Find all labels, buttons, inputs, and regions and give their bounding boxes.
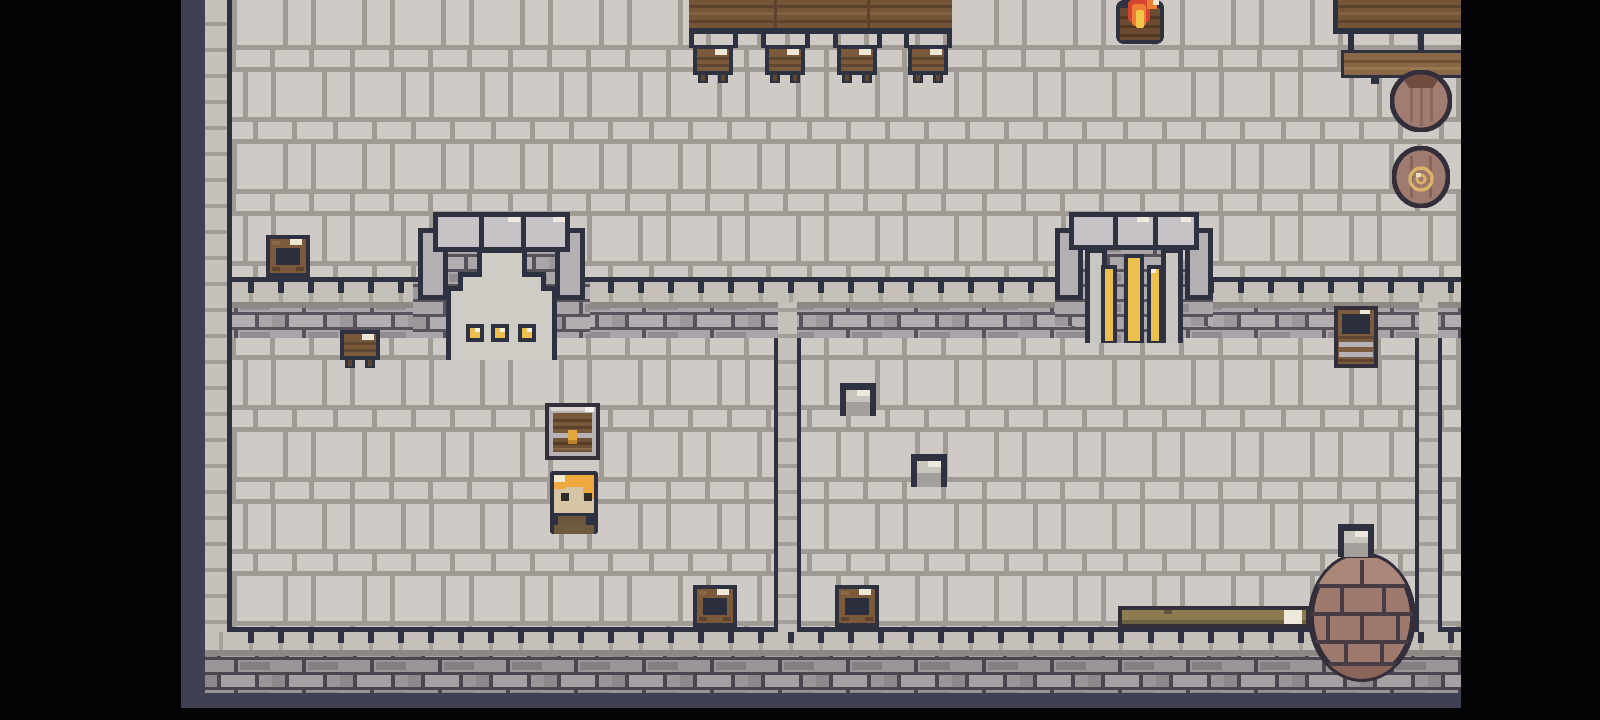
rope-coil-pot[interactable]: [1394, 148, 1448, 206]
gutter-left: [181, 0, 206, 708]
west-wall-line: [227, 0, 232, 632]
letterbox-right: [1461, 0, 1600, 720]
letterbox-left: [0, 0, 181, 720]
open-barrel[interactable]: [1334, 306, 1378, 368]
letterbox-bottom: [0, 708, 1600, 720]
south-hall-wall-shadow: [227, 302, 1461, 308]
room-divider-line-west: [774, 338, 778, 632]
hall-wall-line: [227, 277, 1461, 282]
game-viewport[interactable]: [0, 0, 1600, 720]
rooms-floor: [227, 338, 1461, 627]
supply-chest[interactable]: [545, 403, 600, 460]
east-divider-column: [1419, 302, 1438, 632]
game-scene: [0, 0, 1600, 720]
gutter-bottom: [181, 693, 1461, 708]
north-doorway[interactable]: [413, 212, 590, 360]
clay-pot[interactable]: [1392, 72, 1450, 130]
hall-wall-ticks: [227, 282, 1461, 293]
floor-chest-left[interactable]: [693, 585, 737, 627]
hall-floor: [227, 0, 1461, 277]
room-divider-line-east: [797, 338, 801, 632]
wooden-beam: [1118, 606, 1310, 628]
east-divider-line-east: [1438, 338, 1442, 632]
villager[interactable]: [550, 471, 598, 534]
hall-chest[interactable]: [266, 235, 310, 277]
east-divider-line-west: [1415, 338, 1419, 632]
brazier-fire[interactable]: [1116, 0, 1164, 44]
outer-wall-column: [205, 0, 227, 632]
stone-block-3: [1338, 524, 1374, 557]
golden-gate[interactable]: [1055, 212, 1213, 343]
south-hall-wall-bricks: [227, 308, 1461, 338]
floor-chest-right[interactable]: [835, 585, 879, 627]
stone-block-1: [840, 383, 876, 416]
bottom-wall-ticks: [227, 632, 1461, 643]
stone-block-2: [911, 454, 947, 487]
bottom-wall-bricks: [205, 656, 1461, 693]
bottom-wall-shadow: [205, 650, 1461, 656]
room-divider-column: [778, 302, 797, 632]
